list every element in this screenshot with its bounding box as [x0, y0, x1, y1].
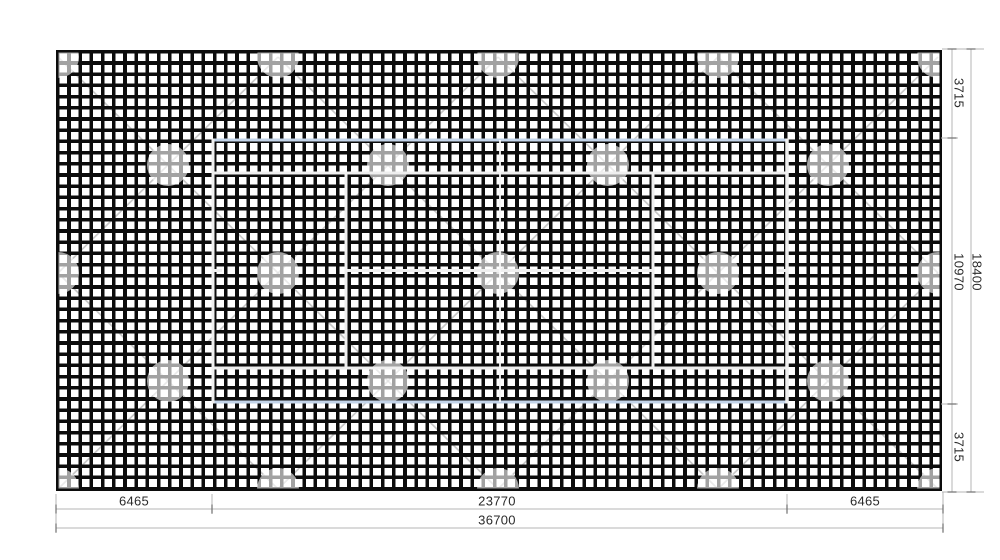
dim-label-right-total: 18400 — [971, 253, 984, 291]
dim-label-right-middle: 10970 — [953, 253, 966, 291]
dim-label-bottom-left: 6465 — [119, 495, 149, 508]
dim-label-right-top: 3715 — [953, 78, 966, 108]
dim-label-right-bottom: 3715 — [953, 432, 966, 462]
site-plan-drawing — [56, 50, 942, 491]
dim-label-bottom-total: 36700 — [478, 514, 516, 527]
dim-label-bottom-center: 23770 — [478, 495, 516, 508]
tennis-court-site-plan: 6465 23770 6465 36700 3715 10970 3715 18… — [0, 0, 1000, 560]
court-markings-layer — [56, 50, 942, 491]
dim-label-bottom-right: 6465 — [850, 495, 880, 508]
